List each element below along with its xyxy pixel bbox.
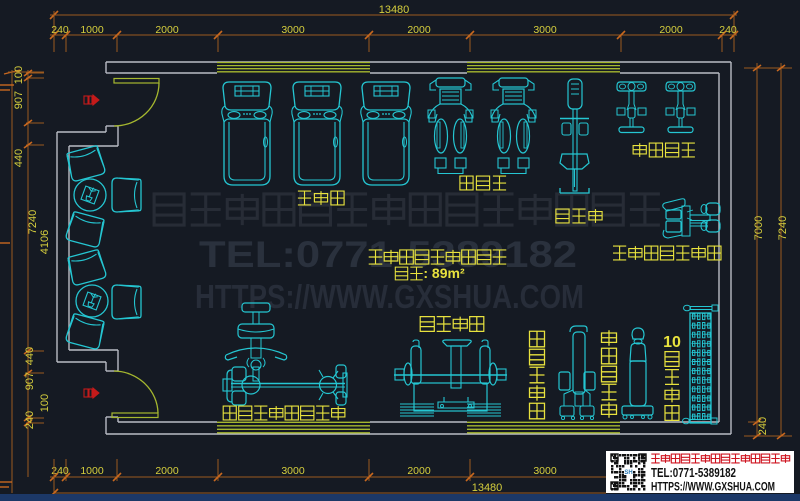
svg-text:3000: 3000	[533, 465, 557, 477]
svg-text:HTTPS://WWW.GXSHUA.COM: HTTPS://WWW.GXSHUA.COM	[195, 278, 584, 315]
svg-text:440: 440	[24, 347, 36, 365]
svg-text:1000: 1000	[80, 24, 104, 36]
svg-text:TEL:0771-5389182: TEL:0771-5389182	[199, 234, 577, 275]
svg-text:7240: 7240	[27, 210, 39, 234]
svg-text:TEL:0771-5389182: TEL:0771-5389182	[651, 465, 736, 480]
svg-text:4106: 4106	[39, 230, 51, 254]
svg-text:907: 907	[13, 91, 25, 109]
svg-text:3000: 3000	[281, 465, 305, 477]
svg-text:2000: 2000	[659, 24, 683, 36]
svg-text:2000: 2000	[407, 24, 431, 36]
svg-text:13480: 13480	[472, 482, 503, 494]
svg-text:3000: 3000	[281, 24, 305, 36]
svg-text:100: 100	[39, 394, 51, 412]
svg-text:13480: 13480	[379, 4, 410, 16]
svg-text:SH: SH	[624, 470, 632, 476]
svg-text:240: 240	[719, 24, 737, 36]
svg-text:3000: 3000	[533, 24, 557, 36]
svg-text:240: 240	[51, 24, 69, 36]
svg-text:: 89m²: : 89m²	[423, 265, 465, 281]
svg-text:1000: 1000	[80, 465, 104, 477]
svg-text:HTTPS://WWW.GXSHUA.COM: HTTPS://WWW.GXSHUA.COM	[651, 482, 775, 494]
svg-text:7000: 7000	[753, 216, 765, 240]
svg-text:2000: 2000	[155, 465, 179, 477]
svg-text:7240: 7240	[777, 216, 789, 240]
svg-text:2000: 2000	[407, 465, 431, 477]
svg-text:2000: 2000	[155, 24, 179, 36]
svg-text:10: 10	[663, 334, 681, 351]
svg-text:240: 240	[24, 411, 36, 429]
svg-text:100: 100	[13, 66, 25, 84]
svg-text:907: 907	[24, 372, 36, 390]
svg-text:240: 240	[757, 417, 769, 435]
svg-text:440: 440	[13, 149, 25, 167]
